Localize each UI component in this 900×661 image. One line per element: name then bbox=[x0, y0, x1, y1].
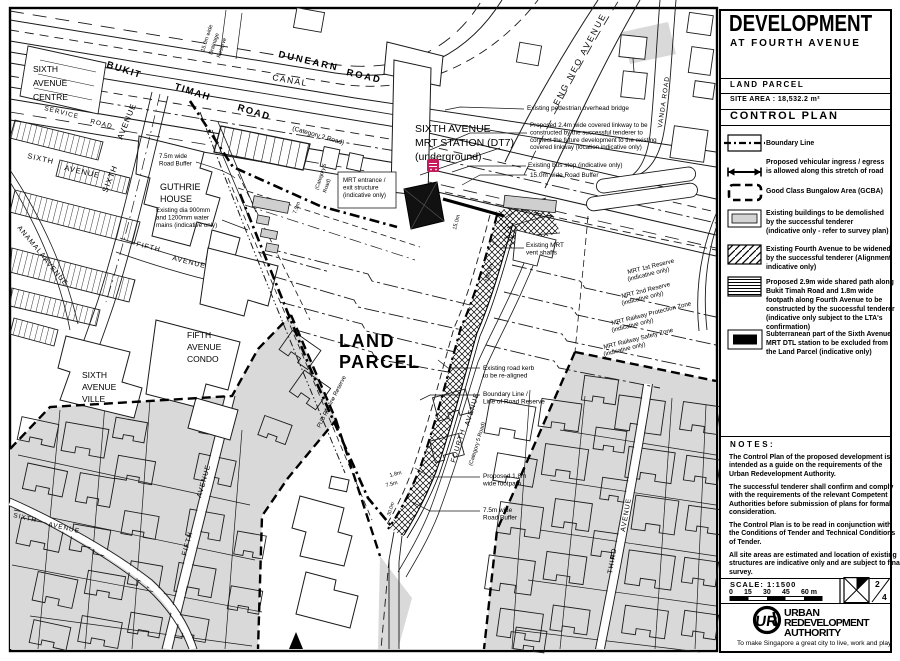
svg-text:2: 2 bbox=[875, 579, 880, 589]
svg-text:0: 0 bbox=[729, 589, 733, 596]
svg-text:SIXTH: SIXTH bbox=[33, 64, 58, 74]
svg-text:30: 30 bbox=[763, 589, 771, 596]
svg-text:(indicative only): (indicative only) bbox=[343, 192, 386, 199]
svg-text:Existing dia 900mm: Existing dia 900mm bbox=[156, 207, 210, 214]
svg-text:connect the future development: connect the future development to the ex… bbox=[530, 137, 657, 144]
svg-text:FIFTH: FIFTH bbox=[187, 330, 211, 340]
svg-text:Existing MRT: Existing MRT bbox=[526, 242, 564, 249]
svg-text:CONDO: CONDO bbox=[187, 354, 219, 364]
svg-text:LAND: LAND bbox=[339, 331, 395, 351]
svg-text:Existing road kerb: Existing road kerb bbox=[483, 365, 535, 372]
svg-text:7.5m wide: 7.5m wide bbox=[159, 153, 188, 160]
svg-text:mains (indicative only): mains (indicative only) bbox=[156, 222, 217, 229]
svg-text:7.5m wide: 7.5m wide bbox=[483, 507, 513, 514]
svg-text:SIXTH AVENUE: SIXTH AVENUE bbox=[415, 123, 491, 135]
svg-text:SIXTH: SIXTH bbox=[82, 370, 107, 380]
svg-text:MRT STATION (DT7): MRT STATION (DT7) bbox=[415, 137, 514, 149]
svg-text:AVENUE: AVENUE bbox=[82, 382, 117, 392]
svg-text:Boundary Line /: Boundary Line / bbox=[483, 391, 528, 398]
svg-text:15.0m wide Road Buffer: 15.0m wide Road Buffer bbox=[530, 172, 599, 179]
svg-text:HOUSE: HOUSE bbox=[160, 194, 192, 204]
svg-text:15: 15 bbox=[744, 589, 752, 596]
svg-text:(underground): (underground) bbox=[415, 151, 482, 163]
svg-text:Road Buffer: Road Buffer bbox=[159, 161, 192, 168]
svg-text:Existing pedestrian overhead b: Existing pedestrian overhead bridge bbox=[527, 105, 629, 112]
svg-text:GUTHRIE: GUTHRIE bbox=[160, 182, 201, 192]
svg-text:To make Singapore a great city: To make Singapore a great city to live, … bbox=[737, 640, 892, 647]
svg-text:45: 45 bbox=[782, 589, 790, 596]
svg-text:constructed by the successful: constructed by the successful tenderer t… bbox=[530, 129, 643, 136]
svg-text:wide footpath: wide footpath bbox=[482, 481, 521, 488]
svg-text:Proposed 1.8m: Proposed 1.8m bbox=[483, 473, 526, 480]
svg-text:AVENUE: AVENUE bbox=[187, 342, 222, 352]
svg-text:Line of Road Reserve: Line of Road Reserve bbox=[483, 399, 545, 406]
svg-text:AUTHORITY: AUTHORITY bbox=[784, 627, 841, 639]
svg-text:to be re-aligned: to be re-aligned bbox=[483, 373, 528, 380]
svg-text:PARCEL: PARCEL bbox=[339, 352, 421, 372]
svg-text:exit structure: exit structure bbox=[343, 185, 379, 192]
svg-text:VILLE: VILLE bbox=[82, 394, 105, 404]
svg-text:covered linkway (location indi: covered linkway (location indicative onl… bbox=[530, 144, 642, 151]
svg-text:MRT entrance /: MRT entrance / bbox=[343, 177, 386, 184]
svg-text:AVENUE: AVENUE bbox=[33, 78, 68, 88]
svg-text:60 m: 60 m bbox=[801, 589, 817, 596]
svg-text:Proposed 2.4m wide covered lin: Proposed 2.4m wide covered linkway to be bbox=[530, 122, 648, 129]
svg-text:CENTRE: CENTRE bbox=[33, 92, 68, 102]
svg-text:and 1200mm water: and 1200mm water bbox=[156, 215, 209, 222]
svg-text:vent shafts: vent shafts bbox=[526, 250, 557, 257]
svg-text:Road Buffer: Road Buffer bbox=[483, 515, 518, 522]
svg-text:4: 4 bbox=[882, 592, 887, 602]
svg-text:Existing bus stop (indicative: Existing bus stop (indicative only) bbox=[528, 162, 622, 169]
